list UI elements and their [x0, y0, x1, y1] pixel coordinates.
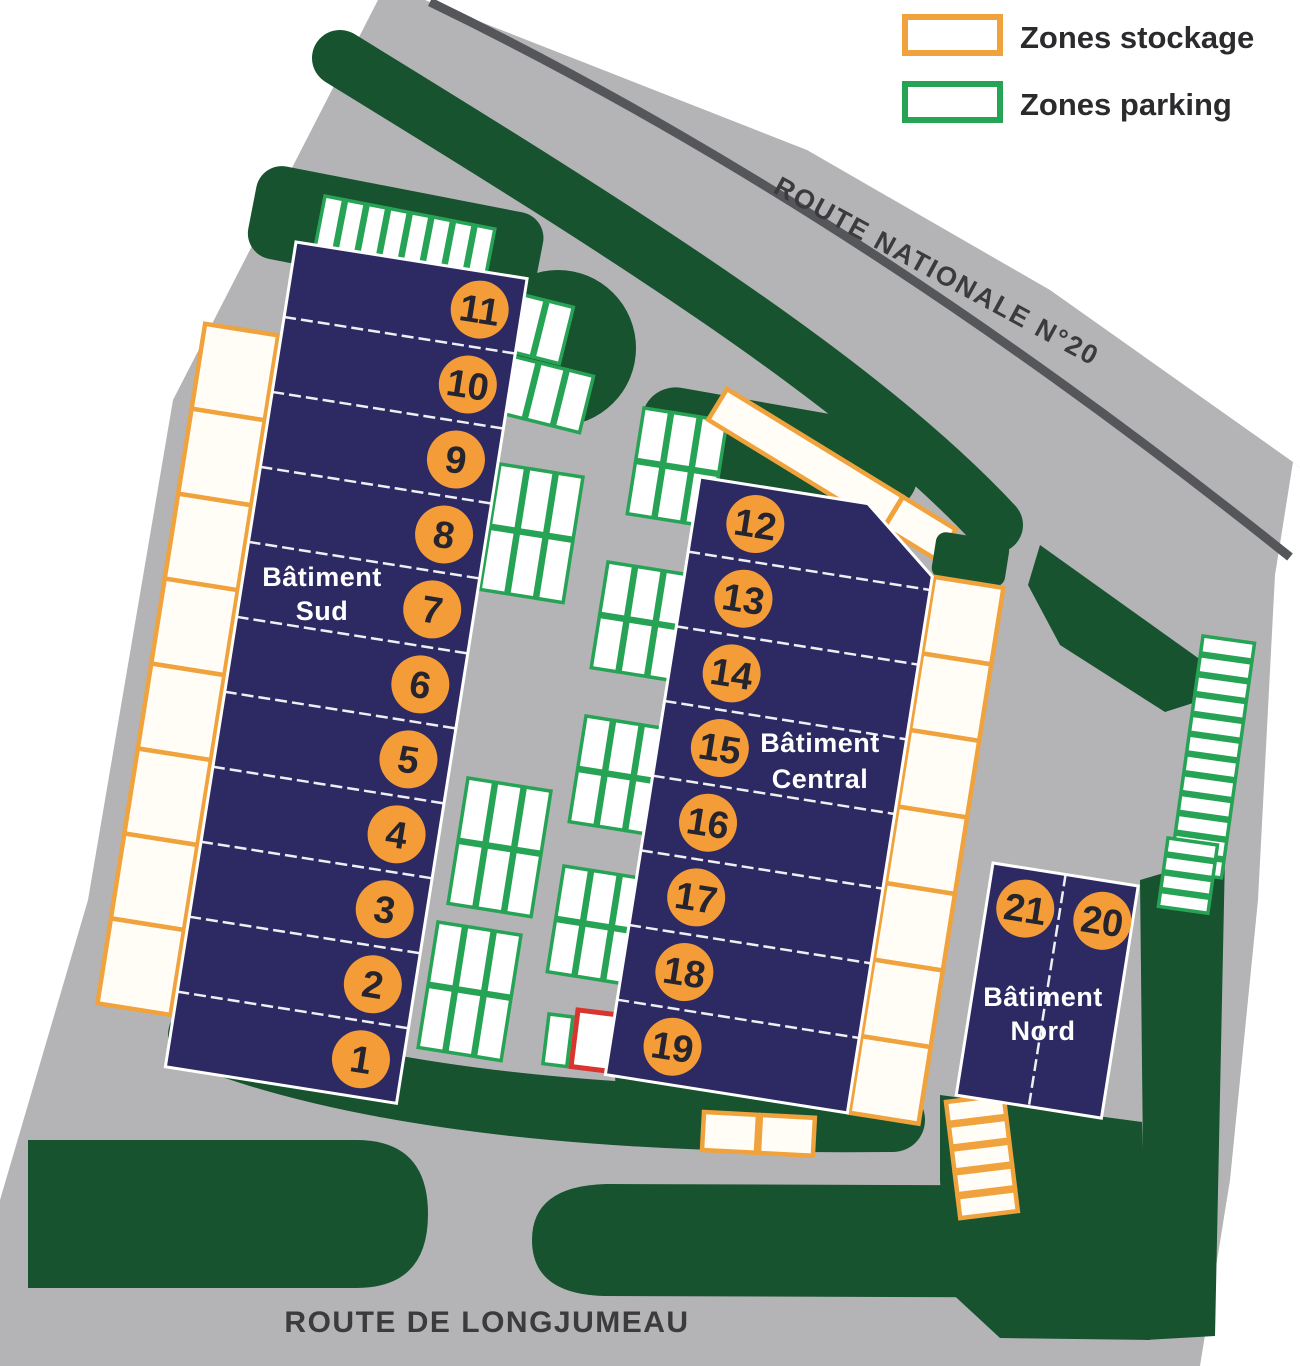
svg-text:16: 16 — [684, 800, 732, 848]
parking-block — [1158, 838, 1217, 913]
svg-text:19: 19 — [648, 1024, 696, 1072]
parking-block — [418, 922, 521, 1061]
svg-text:18: 18 — [660, 949, 708, 997]
legend-swatch-stockage — [905, 17, 1000, 53]
svg-text:13: 13 — [719, 576, 767, 624]
svg-text:17: 17 — [672, 875, 720, 923]
storage-stall — [151, 579, 238, 676]
storage-stall — [886, 807, 967, 894]
storage-stall — [874, 883, 955, 970]
storage-stall — [759, 1115, 815, 1156]
svg-text:10: 10 — [443, 362, 491, 410]
parking-block — [543, 1014, 573, 1067]
storage-stall — [702, 1112, 758, 1153]
svg-text:11: 11 — [456, 287, 502, 335]
svg-text:15: 15 — [695, 725, 743, 773]
route-longjumeau-label: ROUTE DE LONGJUMEAU — [284, 1306, 689, 1339]
storage-block — [946, 1095, 1018, 1218]
storage-stall — [178, 409, 265, 506]
storage-block — [702, 1112, 815, 1156]
parking-block — [448, 778, 551, 917]
svg-text:14: 14 — [707, 651, 755, 699]
svg-text:20: 20 — [1078, 898, 1126, 946]
storage-stall — [192, 324, 279, 421]
site-plan-page: ROUTE NATIONALE N°20 ROUTE DE LONGJUMEAU… — [0, 0, 1300, 1366]
storage-stall — [922, 577, 1003, 664]
storage-stall — [849, 1036, 930, 1123]
storage-stall — [165, 494, 252, 591]
legend-label-parking: Zones parking — [1020, 87, 1232, 122]
storage-stall — [958, 1190, 1018, 1218]
svg-text:21: 21 — [1001, 886, 1049, 934]
site-plan: ROUTE NATIONALE N°20 ROUTE DE LONGJUMEAU… — [0, 0, 1300, 1366]
parking-stall — [543, 1014, 573, 1067]
storage-stall — [862, 960, 943, 1047]
storage-stall — [898, 730, 979, 817]
svg-text:12: 12 — [731, 501, 779, 549]
landscape-strip-south — [532, 1184, 1208, 1298]
storage-stall — [138, 664, 225, 761]
storage-stall — [910, 653, 991, 740]
legend-swatch-parking — [905, 84, 1000, 120]
storage-stall — [124, 748, 211, 845]
storage-stall — [111, 833, 198, 930]
legend-label-stockage: Zones stockage — [1020, 20, 1254, 55]
storage-stall — [97, 918, 184, 1015]
landscape-strip-southwest — [28, 1140, 428, 1288]
